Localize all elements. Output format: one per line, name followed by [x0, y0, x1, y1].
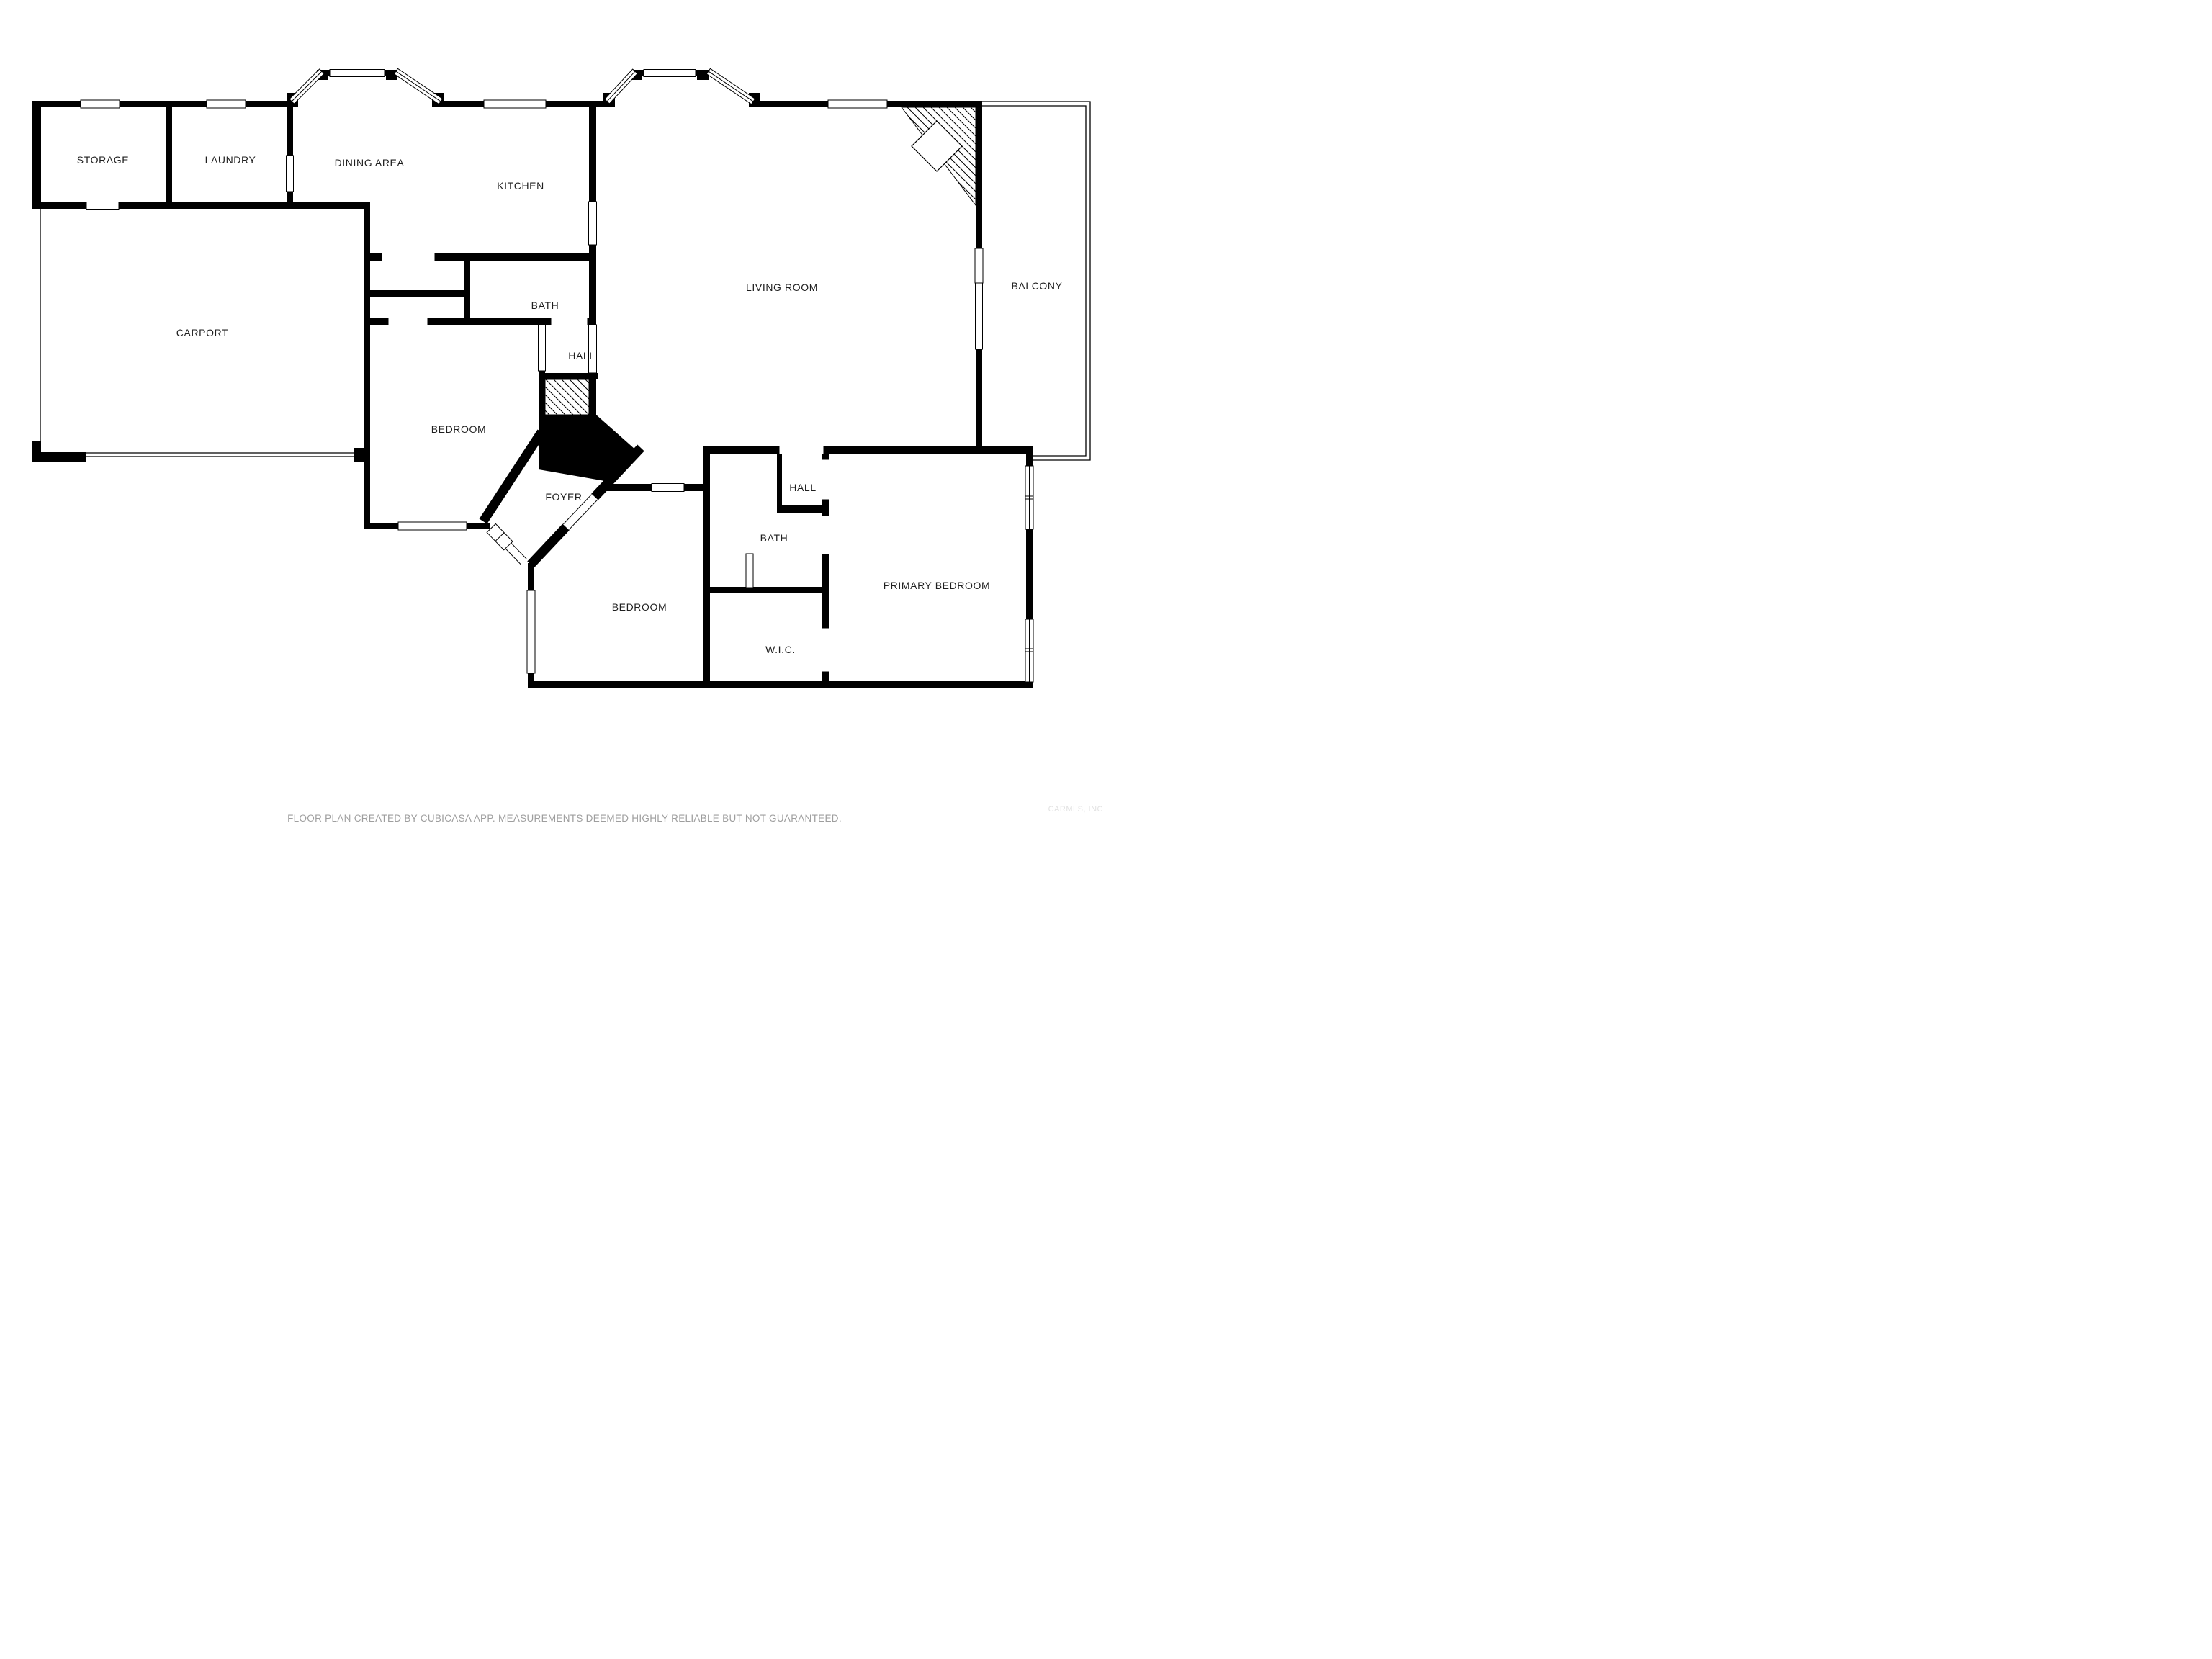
window-storage [81, 100, 120, 108]
door-hall2-primary [822, 459, 829, 500]
wall-hall2-bottom [777, 505, 824, 513]
opening-kitchen-living [589, 202, 597, 245]
wall-dining-bottom-stub [364, 253, 382, 261]
wall-laundry-right-a [287, 107, 293, 156]
room-label-carport: CARPORT [176, 327, 228, 338]
floor-plan-page: STORAGE LAUNDRY DINING AREA KITCHEN LIVI… [0, 0, 1106, 829]
wall-living-right-a [976, 101, 982, 248]
wall-closet-right [464, 253, 470, 325]
wall-kitchen-bottom [435, 253, 596, 261]
window-primary-right-upper [1025, 466, 1033, 529]
opening-balcony-slider [976, 283, 983, 349]
wall-bedroom1-top-a [364, 318, 388, 325]
room-label-balcony: BALCONY [1011, 280, 1062, 292]
carport-post-se [354, 448, 370, 462]
room-label-wic: W.I.C. [765, 644, 796, 655]
window-living-balcony [975, 248, 983, 283]
room-label-dining-area: DINING AREA [335, 157, 405, 168]
door-wic [822, 628, 829, 672]
wall-bedroom2-left-b [528, 673, 534, 681]
wall-primary-right-a [1026, 454, 1033, 466]
window-primary-right-lower [1025, 619, 1033, 682]
wall-storage-left [32, 101, 41, 209]
room-label-primary-bedroom: PRIMARY BEDROOM [884, 580, 991, 591]
door-bath2 [822, 516, 829, 554]
room-label-hall-1: HALL [568, 350, 595, 361]
door-storage-from-carport [86, 202, 119, 210]
bay-corner [697, 70, 709, 80]
footer-disclaimer: FLOOR PLAN CREATED BY CUBICASA APP. MEAS… [287, 813, 842, 824]
window-mid-top [484, 100, 546, 108]
wall-storage-laundry-divider [166, 107, 172, 202]
room-label-storage: STORAGE [77, 154, 129, 166]
room-label-foyer: FOYER [545, 491, 582, 503]
wall-living-south-b [824, 446, 1033, 454]
room-label-bath-2: BATH [760, 532, 788, 544]
door-laundry [287, 156, 294, 192]
wall-closet2-right [589, 373, 596, 416]
door-bedroom1-closet [388, 318, 428, 325]
wall-bedroom2-right [703, 446, 710, 688]
room-label-bedroom-2: BEDROOM [612, 601, 667, 613]
opening-hall2 [779, 446, 824, 454]
window-kitchen-bay-top [644, 70, 696, 77]
wall-living-south-a [709, 446, 779, 454]
wall-kitchen-living-divider-a [589, 107, 596, 202]
opening-hall1-living [589, 325, 597, 373]
room-label-kitchen: KITCHEN [497, 180, 544, 192]
wall-top-storage-laundry [32, 101, 293, 107]
floor-plan: STORAGE LAUNDRY DINING AREA KITCHEN LIVI… [0, 0, 1106, 829]
wall-suite-divider-b [822, 500, 829, 516]
room-label-bedroom-1: BEDROOM [431, 423, 487, 435]
door-bath1 [551, 318, 588, 325]
door-bedroom2 [652, 484, 684, 492]
wall-primary-right-b [1026, 529, 1033, 619]
room-label-living-room: LIVING ROOM [746, 282, 818, 293]
window-dining-bay-top [330, 70, 385, 77]
window-laundry [207, 100, 246, 108]
room-label-laundry: LAUNDRY [205, 154, 256, 166]
wall-closet-divider [364, 290, 470, 297]
room-label-bath-1: BATH [531, 300, 559, 311]
watermark-text: CARMLS, INC [1048, 805, 1103, 814]
wall-bath1-corner [588, 318, 596, 325]
wall-laundry-right-b [287, 192, 293, 202]
door-leaf-bath2 [746, 554, 753, 588]
window-bedroom1-bottom [398, 522, 467, 530]
wall-bedroom2-top-a [603, 484, 652, 491]
window-living-top [828, 100, 887, 108]
wall-bedroom1-top-b [428, 318, 551, 325]
foyer-closet-hatch [545, 379, 589, 415]
wall-bedroom2-left-a [528, 563, 534, 590]
door-bedroom1 [539, 325, 546, 371]
wall-hall2-left [777, 454, 782, 513]
wall-bottom-exterior [528, 681, 1033, 688]
wall-bath2-wic-divider [703, 587, 829, 593]
room-label-hall-2: HALL [789, 482, 816, 493]
wall-carport-top [32, 202, 370, 209]
opening-dining-closet [382, 253, 435, 261]
wall-living-right-b [976, 349, 982, 452]
window-bedroom2-left [527, 590, 535, 673]
